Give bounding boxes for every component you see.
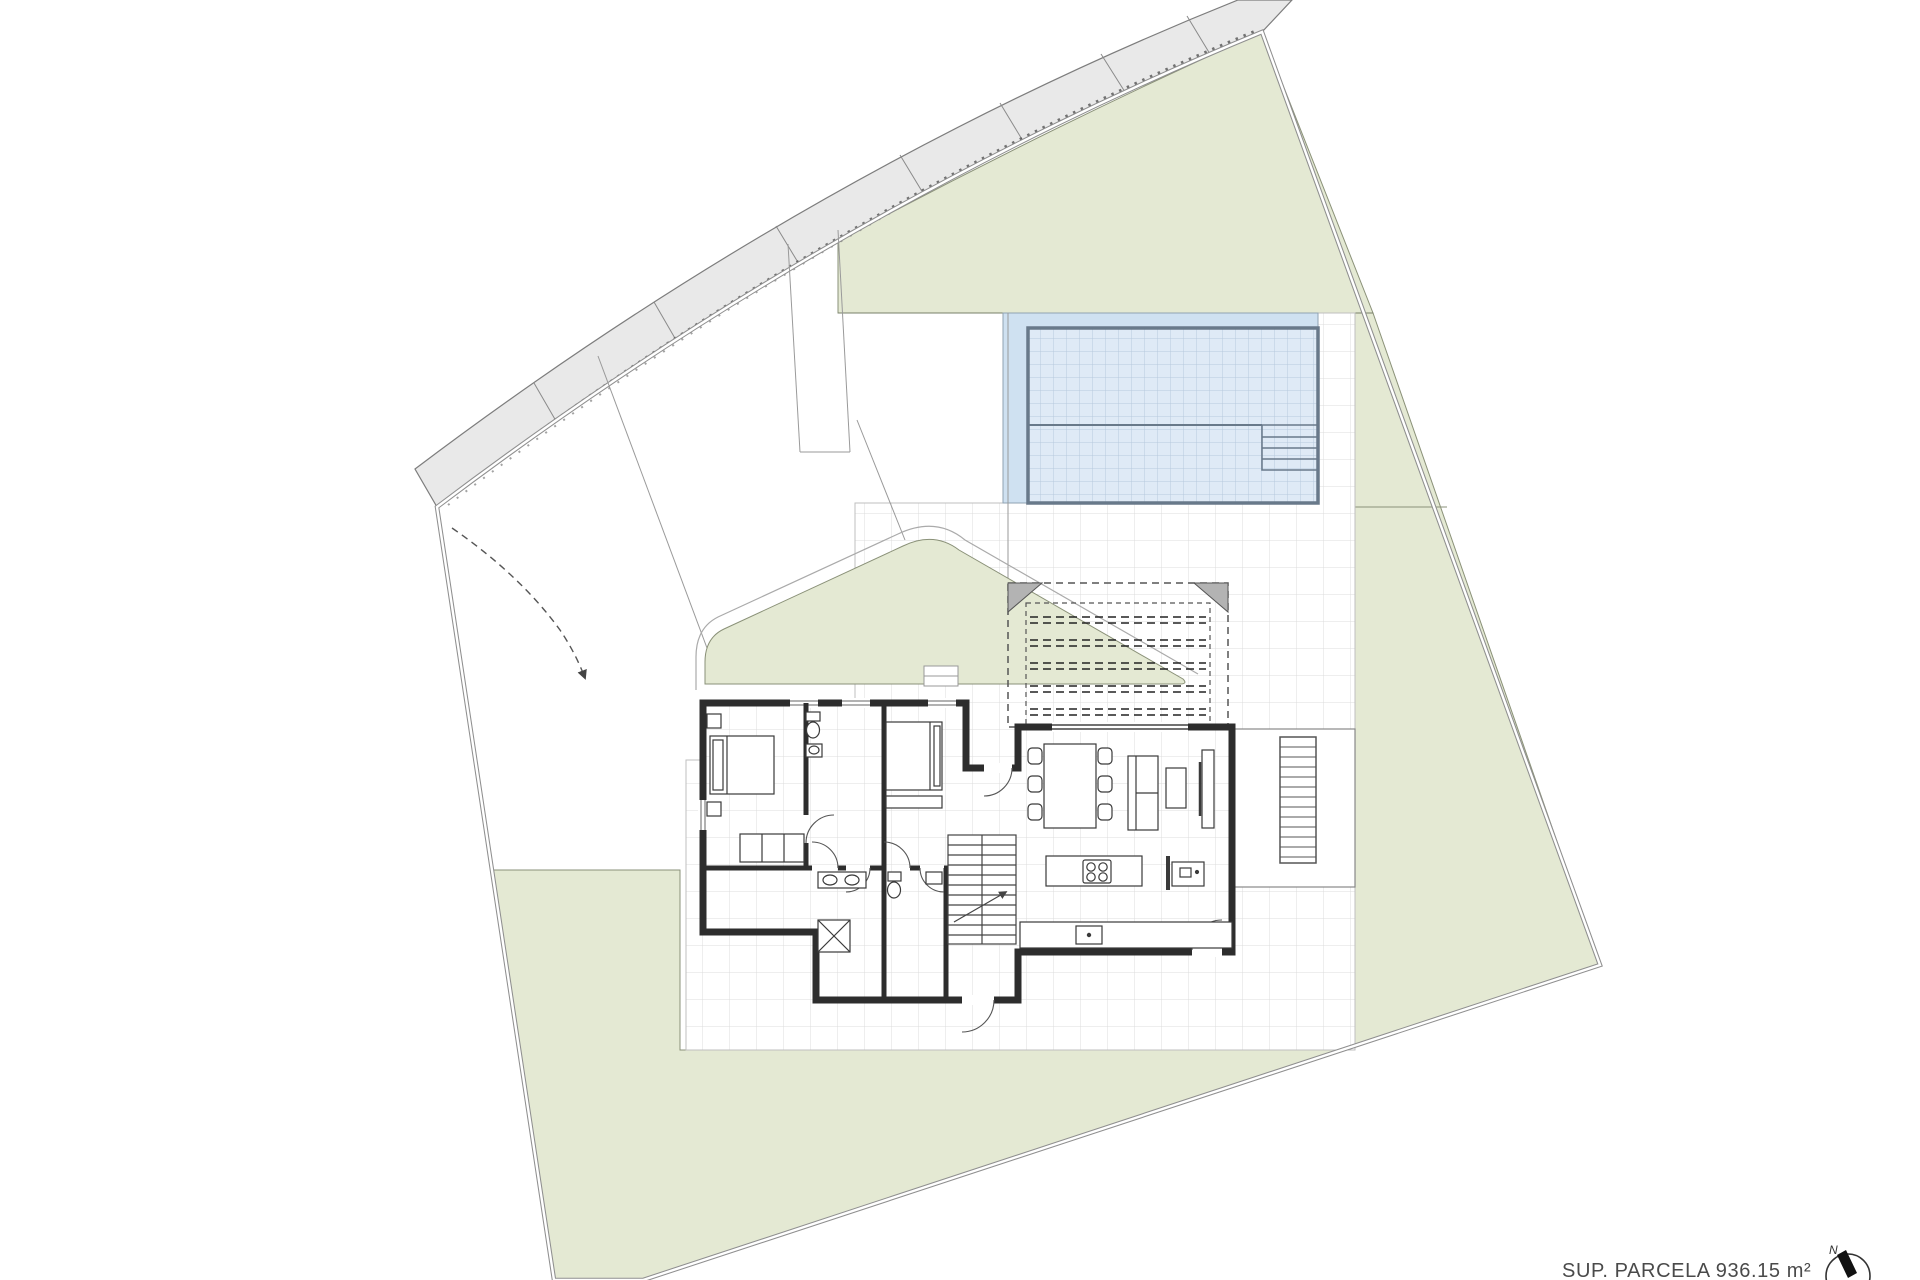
wardrobe-bed1 bbox=[740, 834, 804, 862]
pool-basin bbox=[1028, 328, 1318, 503]
door-bed2-garden bbox=[928, 698, 956, 708]
door-gap-front bbox=[984, 763, 1012, 773]
nightstand bbox=[707, 802, 721, 816]
sink bbox=[926, 872, 942, 884]
sink bbox=[845, 875, 859, 885]
wood-deck bbox=[1232, 729, 1355, 887]
area-label: SUP. PARCELA 936.15 m² bbox=[1562, 1260, 1811, 1280]
coffee-table bbox=[1166, 768, 1186, 808]
window-bath1 bbox=[842, 698, 870, 708]
kitchen-island bbox=[1046, 856, 1142, 886]
staircase bbox=[948, 835, 1016, 944]
north-arrow: N bbox=[1826, 1243, 1870, 1280]
site-plan-svg: SUP. PARCELA 936.15 m² N bbox=[0, 0, 1920, 1280]
swimming-pool bbox=[1003, 313, 1318, 503]
entrance-path-left bbox=[788, 244, 800, 452]
nightstand bbox=[707, 714, 721, 728]
wardrobe-bed2 bbox=[886, 796, 942, 808]
door-gap-terrace-south bbox=[962, 995, 994, 1005]
tv-unit bbox=[1200, 750, 1214, 828]
sink bbox=[823, 875, 837, 885]
site-plan-page: SUP. PARCELA 936.15 m² N bbox=[0, 0, 1920, 1280]
dining-table bbox=[1044, 744, 1096, 828]
toilet-tank bbox=[888, 872, 901, 881]
north-letter: N bbox=[1829, 1243, 1838, 1257]
entry-steps bbox=[924, 666, 958, 686]
turning-path-arc bbox=[452, 528, 585, 678]
kitchen-counter-south bbox=[1020, 922, 1232, 948]
glass-wall-living bbox=[1052, 722, 1188, 732]
toilet-bowl bbox=[888, 882, 901, 898]
toilet-tank bbox=[806, 712, 820, 721]
sofa bbox=[1128, 756, 1158, 830]
toilet-bowl bbox=[807, 722, 820, 738]
